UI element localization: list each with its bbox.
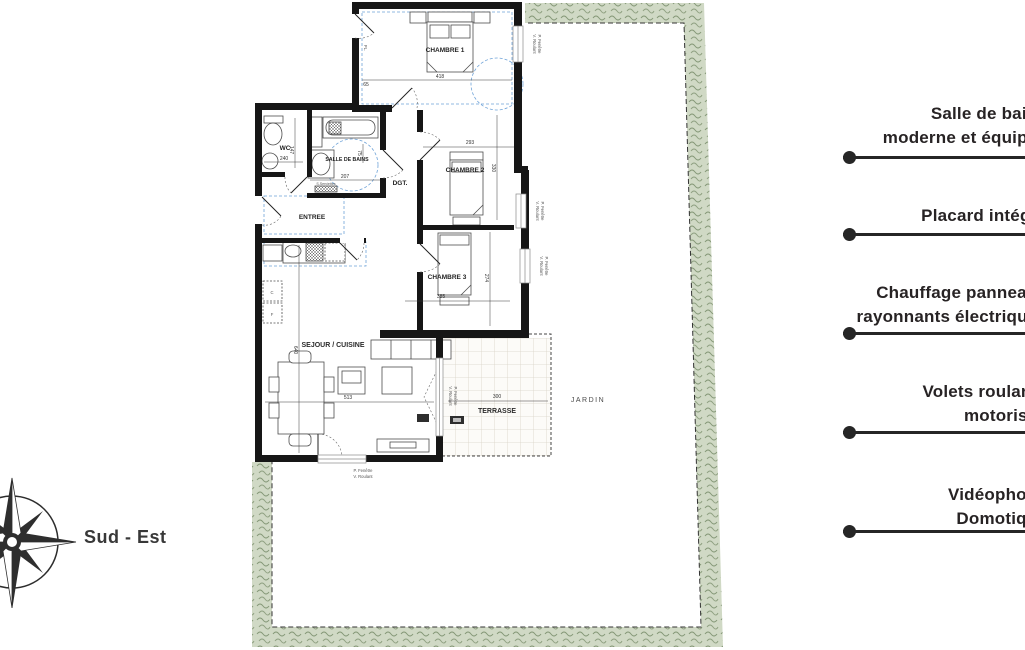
feature-item: Vidéophone Domotique xyxy=(727,483,1025,531)
room-label-chambre3: CHAMBRE 3 xyxy=(428,274,467,281)
room-label-sdb: SALLE DE BAINS xyxy=(325,157,369,163)
room-label-placard: PL. xyxy=(363,45,368,51)
dim-chambre3-width: 385 xyxy=(437,294,446,300)
window-label: V. Roulant xyxy=(532,34,537,54)
room-label-sejour: SEJOUR / CUISINE xyxy=(301,342,364,349)
room-label-entree: ENTREE xyxy=(299,214,326,221)
floorplan-page: CHAMBRE 1 CHAMBRE 2 CHAMBRE 3 WC SALLE D… xyxy=(0,0,1025,650)
compass-rose-icon xyxy=(0,472,82,612)
feature-line: moderne et équipée xyxy=(727,126,1025,150)
dining-table-icon xyxy=(269,351,334,446)
window-label: V. Roulant xyxy=(535,201,540,221)
towel-radiator-label: S.Serviettes xyxy=(316,182,336,186)
dim-wc: 240 xyxy=(280,156,289,162)
armchair-icon xyxy=(382,367,412,394)
room-label-dgt: DGT. xyxy=(393,180,408,187)
window-label: V. Roulant xyxy=(353,474,373,479)
dim-wc-height: 147 xyxy=(288,146,294,155)
feature-bullet xyxy=(843,228,856,241)
single-bed-icon xyxy=(450,152,483,225)
dim-placard: 65 xyxy=(363,82,369,88)
window-icon xyxy=(513,26,523,62)
feature-divider xyxy=(843,332,1025,335)
hob-icon xyxy=(306,243,323,261)
feature-item: Chauffage panneaux rayonnants électrique… xyxy=(727,281,1025,329)
window-icon xyxy=(520,249,530,283)
dim-sejour-height: 640 xyxy=(292,346,298,355)
towel-radiator-icon xyxy=(315,186,337,192)
window-label: V. Roulant xyxy=(539,256,544,276)
sideboard-icon xyxy=(377,439,429,452)
feature-divider xyxy=(843,431,1025,434)
tv-table-icon xyxy=(338,367,365,394)
feature-line: motorisés xyxy=(727,404,1025,428)
feature-bullet xyxy=(843,151,856,164)
door-badge xyxy=(417,414,429,422)
feature-line: rayonnants électriques xyxy=(727,305,1025,329)
feature-bullet xyxy=(843,525,856,538)
feature-bullet xyxy=(843,327,856,340)
french-window-icon xyxy=(318,455,366,463)
feature-divider xyxy=(843,156,1025,159)
feature-line: Vidéophone xyxy=(727,483,1025,507)
window-label: P. Fenêtre xyxy=(353,468,373,473)
washbasin-icon xyxy=(262,153,278,169)
window-label: V. Roulant xyxy=(448,386,453,406)
room-label-chambre2: CHAMBRE 2 xyxy=(446,167,485,174)
dim-terrasse-width: 300 xyxy=(493,394,502,400)
feature-divider xyxy=(843,233,1025,236)
room-label-chambre1: CHAMBRE 1 xyxy=(426,47,465,54)
orientation-label: Sud - Est xyxy=(84,527,167,548)
window-icon xyxy=(516,194,526,228)
feature-line: Placard intégré xyxy=(727,204,1025,228)
dim-chambre1-width: 418 xyxy=(436,74,445,80)
toilet-icon xyxy=(264,116,283,145)
cupboard-label: C xyxy=(270,290,273,295)
dim-chambre3-height: 274 xyxy=(483,274,489,283)
dim-sdb-width: 207 xyxy=(341,174,350,180)
dim-sdb-height: 75 xyxy=(356,150,362,156)
dim-sejour-width: 513 xyxy=(344,395,353,401)
fridge-label: F xyxy=(271,312,274,317)
feature-line: Volets roulants xyxy=(727,380,1025,404)
dim-chambre2-width: 293 xyxy=(466,140,475,146)
feature-item: Placard intégré xyxy=(727,204,1025,228)
room-label-terrasse: TERRASSE xyxy=(478,408,516,415)
feature-item: Volets roulants motorisés xyxy=(727,380,1025,428)
terrace-door-icon xyxy=(436,358,443,436)
feature-line: Domotique xyxy=(727,507,1025,531)
feature-line: Salle de bains xyxy=(727,102,1025,126)
room-label-jardin: JARDIN xyxy=(571,397,605,404)
feature-divider xyxy=(843,530,1025,533)
feature-bullet xyxy=(843,426,856,439)
feature-item: Salle de bains moderne et équipée xyxy=(727,102,1025,150)
dim-chambre2-height: 330 xyxy=(490,164,496,173)
kitchen-sink-icon xyxy=(285,245,301,257)
feature-line: Chauffage panneaux xyxy=(727,281,1025,305)
